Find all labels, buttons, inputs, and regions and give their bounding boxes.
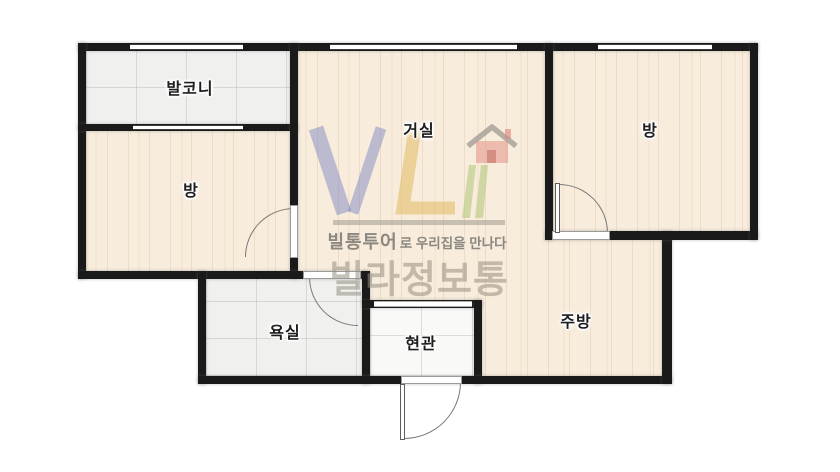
room-left-door-leaf	[290, 205, 298, 258]
room-label-bathroom: 욕실	[269, 319, 300, 343]
wall-right	[750, 43, 758, 240]
wall-entrance-right	[474, 300, 482, 384]
room-label-kitchen: 주방	[560, 308, 591, 332]
living-window	[330, 44, 517, 50]
wall-kitchen-right	[662, 231, 672, 384]
room-right-door-opening	[552, 231, 610, 240]
room-label-entrance: 현관	[405, 330, 436, 354]
wall-left	[78, 43, 86, 279]
balcony-window	[130, 44, 243, 50]
front-door-arc	[404, 382, 461, 439]
room-right-door-leaf	[555, 183, 560, 233]
front-door-opening	[401, 376, 462, 384]
front-door-leaf	[400, 384, 405, 440]
wall-room-right-left	[545, 43, 553, 240]
floorplan: 빌통투어로 우리집을 만나다 빌라정보통 발코니 방 거실 방 욕실 현관 주방	[0, 0, 840, 472]
room-label-living: 거실	[403, 117, 434, 141]
room-label-room-right: 방	[642, 117, 658, 141]
room-label-room-left: 방	[183, 177, 199, 201]
wall-bathroom-right	[362, 271, 370, 384]
room-right-window	[598, 44, 712, 50]
wall-bathroom-left	[198, 271, 206, 384]
room-label-balcony: 발코니	[166, 75, 213, 99]
bathroom-door-leaf	[303, 271, 361, 279]
balcony-divider-window	[133, 125, 243, 130]
entrance-threshold	[374, 301, 472, 307]
